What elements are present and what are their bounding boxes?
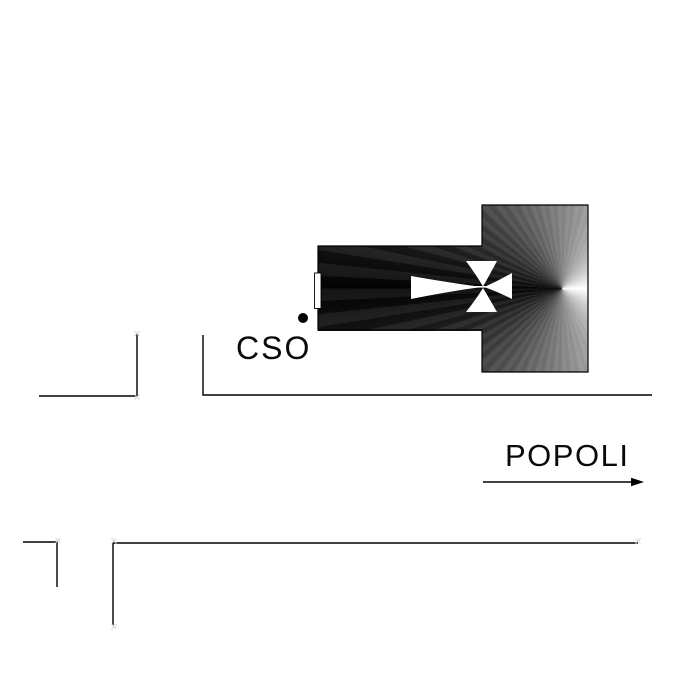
map-linework <box>0 0 700 700</box>
direction-label-popoli: POPOLI <box>505 440 629 471</box>
cross-axis-line <box>413 286 512 288</box>
street-label-cso: CSO <box>236 332 311 364</box>
cross-arm-south <box>466 288 497 312</box>
street-edge-lower-left <box>23 542 57 587</box>
arrow-head <box>631 478 644 487</box>
vertex-marker <box>112 624 117 629</box>
street-edge-upper-left <box>39 334 137 396</box>
church-entrance-marker <box>315 273 322 309</box>
poi-dot <box>298 313 308 323</box>
maltese-cross-icon <box>411 261 512 312</box>
vertex-marker <box>56 538 61 543</box>
cross-arm-north <box>466 261 497 287</box>
right-arrow-icon <box>483 478 644 487</box>
site-map-canvas: CSO POPOLI <box>0 0 700 700</box>
vertex-markers <box>56 331 641 629</box>
street-edge-lower-long <box>113 543 638 625</box>
